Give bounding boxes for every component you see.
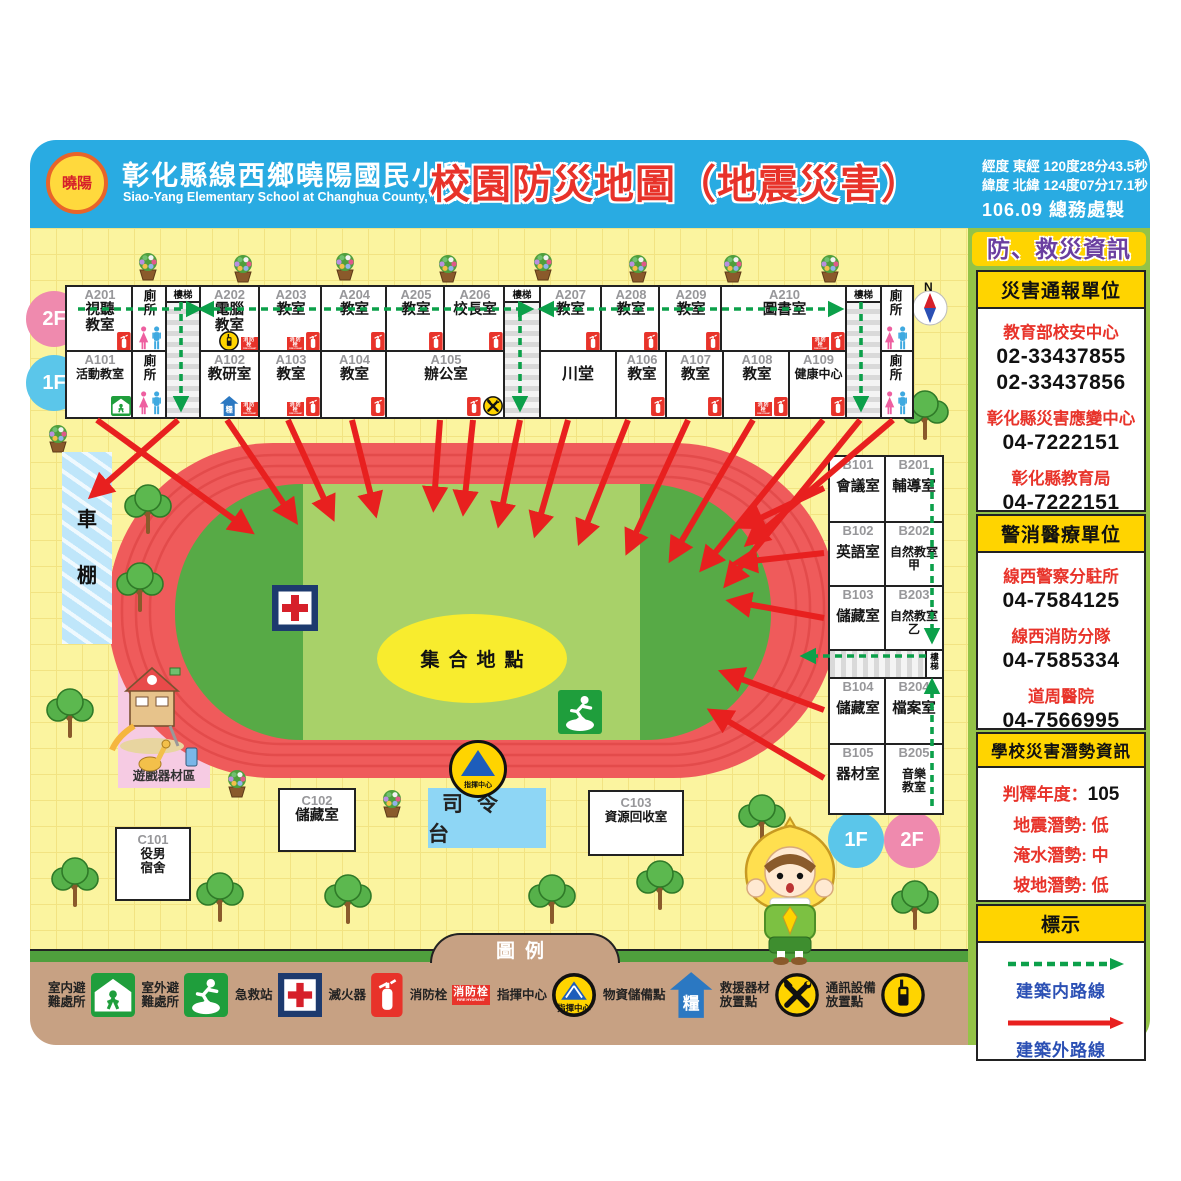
hydrant-icon: 消防栓FIRE HYDRANT <box>452 985 490 1005</box>
room-icons: 消防栓FIRE HYDRANT <box>262 332 320 351</box>
room-id: B102 <box>830 524 886 538</box>
room-A102: A102 教研室 糧消防栓FIRE HYDRANT <box>197 350 262 419</box>
legend-bar: 室内避 難處所室外避 難處所急救站滅火器消防栓消防栓FIRE HYDRANT指揮… <box>30 962 968 1045</box>
toilet-cell: 廁 所 <box>131 350 169 419</box>
contact-phone: 04-7585334 <box>978 649 1144 673</box>
room-A101: A101 活動教室 <box>65 350 135 419</box>
extinguisher-icon <box>706 332 720 351</box>
bike-shed-label: 車 棚 <box>77 492 97 604</box>
school-name-english: Siao-Yang Elementary School at Changhua … <box>123 190 473 204</box>
room-name: 辦公室 <box>387 368 505 384</box>
legend-items: 室内避 難處所室外避 難處所急救站滅火器消防栓消防栓FIRE HYDRANT指揮… <box>48 972 962 1018</box>
command-center-label: 指揮中心 <box>452 780 504 790</box>
room-name: 教室 <box>260 368 322 384</box>
room-A206: A206 校長室 <box>443 285 507 354</box>
stage-platform: 司令台 <box>428 788 546 848</box>
room-name: 教室 <box>260 303 322 319</box>
room-id: B204 <box>886 680 942 694</box>
room-id: A209 <box>660 288 722 302</box>
room-icons <box>604 332 658 351</box>
potential-row: 淹水潛勢: 中 <box>978 841 1144 866</box>
room-A210: A210 圖書室 消防栓FIRE HYDRANT <box>720 285 849 354</box>
bike-shed: 車 棚 <box>62 452 112 644</box>
section-header: 災害通報單位 <box>978 272 1144 309</box>
stairs-column: 樓梯 <box>503 285 541 419</box>
contact-phone: 04-7584125 <box>978 589 1144 613</box>
room-id: A109 <box>790 353 847 367</box>
room-A108: A108 教室 消防栓FIRE HYDRANT <box>722 350 792 419</box>
room-id: A204 <box>322 288 387 302</box>
room-id: A202 <box>199 288 260 302</box>
legend-item-extinguisher: 滅火器 <box>329 973 403 1017</box>
room-A109: A109 健康中心 <box>788 350 849 419</box>
room-name: 儲藏室 <box>280 809 354 825</box>
room-name: 檔案室 <box>886 702 942 718</box>
room-name: 器材室 <box>830 768 886 784</box>
legend-item-hydrant: 消防栓消防栓FIRE HYDRANT <box>410 985 490 1005</box>
room-id: A103 <box>260 353 322 367</box>
extinguisher-icon <box>831 332 845 351</box>
room-name: 役男 宿舍 <box>117 848 189 875</box>
room-川堂: 川堂 <box>537 350 619 419</box>
room-name: 資源回收室 <box>590 811 682 825</box>
room-icons: 消防栓FIRE HYDRANT <box>726 397 788 416</box>
hydrant-icon: 消防栓FIRE HYDRANT <box>287 402 304 416</box>
room-name: 教室 <box>660 303 722 319</box>
room-name: 活動教室 <box>67 368 133 381</box>
toilet-persons <box>133 326 167 350</box>
room-id: A107 <box>667 353 724 367</box>
room-id: A106 <box>617 353 667 367</box>
room-icons <box>619 397 665 416</box>
disaster-map-poster: 曉陽 彰化縣線西鄉曉陽國民小學 Siao-Yang Elementary Sch… <box>0 0 1181 1181</box>
outdoor-shelter-icon <box>184 973 228 1017</box>
svg-text:指揮中心: 指揮中心 <box>557 1003 591 1013</box>
supply-icon: 糧 <box>220 396 238 416</box>
hydrant-icon: 消防栓FIRE HYDRANT <box>287 337 304 351</box>
room-icons: 消防栓FIRE HYDRANT <box>201 331 258 351</box>
extinguisher-icon <box>586 332 600 351</box>
section-header: 警消醫療單位 <box>978 516 1144 553</box>
room-icons <box>69 396 131 416</box>
room-A104: A104 教室 <box>320 350 389 419</box>
extinguisher-icon <box>371 332 385 351</box>
command-center-badge: 指揮中心 <box>449 740 507 798</box>
room-B104: B104 儲藏室 <box>828 677 888 747</box>
room-id: A205 <box>387 288 445 302</box>
room-id: A207 <box>539 288 602 302</box>
room-icons <box>324 397 385 416</box>
floor-badge-2f-b: 2F <box>884 812 940 868</box>
room-name: 音樂 教室 <box>886 768 942 794</box>
playground-label: 遊戲器材區 <box>118 765 210 784</box>
potential-row: 坡地潛勢: 低 <box>978 871 1144 896</box>
room-id: B201 <box>886 458 942 472</box>
room-name: 儲藏室 <box>830 702 886 718</box>
stairs-label: 樓梯 <box>503 285 541 303</box>
contact-phone: 04-7222151 <box>978 431 1144 455</box>
first-aid-icon <box>278 973 322 1017</box>
contact-name: 道周醫院 <box>978 683 1144 707</box>
room-B102: B102 英語室 <box>828 521 888 589</box>
room-icons <box>541 332 600 351</box>
room-B101: B101 會議室 <box>828 455 888 525</box>
comm-device-icon <box>881 973 925 1017</box>
toilet-persons <box>880 326 912 350</box>
room-A208: A208 教室 <box>600 285 662 354</box>
stairs-label: 樓梯 <box>165 285 201 303</box>
page-title: 校園防災地圖（地震災害） <box>430 152 975 210</box>
stairs-column: 樓梯 <box>845 285 882 419</box>
room-id: A210 <box>722 288 847 302</box>
toilet-label: 廁 所 <box>880 354 912 383</box>
room-name: 電腦 教室 <box>199 303 260 334</box>
room-id: A105 <box>387 353 505 367</box>
room-icons <box>389 396 503 416</box>
extinguisher-icon <box>117 332 131 351</box>
extinguisher-icon <box>774 397 788 416</box>
potential-row: 地震潛勢: 低 <box>978 811 1144 836</box>
room-id: B202 <box>886 524 942 538</box>
contact-name: 彰化縣教育局 <box>978 465 1144 489</box>
section-header: 標示 <box>978 906 1144 943</box>
room-id: C102 <box>280 794 354 808</box>
legend-label: 室内避 難處所 <box>48 981 86 1010</box>
male-icon <box>151 391 162 415</box>
legend-item-indoor-shelter: 室内避 難處所 <box>48 973 135 1017</box>
male-icon <box>897 326 908 350</box>
legend-label: 物資儲備點 <box>603 988 666 1002</box>
indoor-shelter-icon <box>91 973 135 1017</box>
legend-label: 指揮中心 <box>497 988 547 1002</box>
room-id: A206 <box>445 288 505 302</box>
hydrant-icon: 消防栓FIRE HYDRANT <box>755 402 772 416</box>
room-icons <box>662 332 720 351</box>
room-A103: A103 教室 消防栓FIRE HYDRANT <box>258 350 324 419</box>
room-id: C103 <box>590 796 682 810</box>
room-id: A102 <box>199 353 260 367</box>
longitude-text: 經度 東經 120度28分43.5秒 <box>982 155 1148 175</box>
room-name: 英語室 <box>830 546 886 562</box>
route-label: 建築内路線 <box>978 977 1144 1002</box>
extinguisher-icon <box>306 397 320 416</box>
hydrant-icon: 消防栓FIRE HYDRANT <box>241 402 258 416</box>
room-icons <box>447 332 503 351</box>
rescue-tools-icon <box>483 396 503 416</box>
room-id: B205 <box>886 746 942 760</box>
room-name: 教室 <box>322 368 387 384</box>
assessment-year: 判釋年度：105 <box>978 780 1144 806</box>
room-icons: 消防栓FIRE HYDRANT <box>262 397 320 416</box>
legend-label: 消防栓 <box>410 988 448 1002</box>
school-logo: 曉陽 <box>46 152 108 214</box>
extinguisher-icon <box>467 397 481 416</box>
command-icon: 指揮中心 <box>552 973 596 1017</box>
room-name: 教室 <box>724 368 790 384</box>
room-B202: B202 自然教室 甲 <box>884 521 944 589</box>
room-id: A104 <box>322 353 387 367</box>
assembly-point: 集合地點 <box>377 614 567 703</box>
contact-name: 線西警察分駐所 <box>978 563 1144 587</box>
toilet-label: 廁 所 <box>880 289 912 318</box>
room-name: 健康中心 <box>790 368 847 381</box>
female-icon <box>884 391 895 415</box>
legend-label: 急救站 <box>235 988 273 1002</box>
legend-item-supply: 物資儲備點糧 <box>603 972 713 1018</box>
room-icons: 糧消防栓FIRE HYDRANT <box>201 396 258 416</box>
room-name: 川堂 <box>539 366 617 383</box>
room-name: 視聽 教室 <box>67 303 133 334</box>
room-name: 會議室 <box>830 480 886 496</box>
contact-name: 教育部校安中心 <box>978 319 1144 343</box>
female-icon <box>884 326 895 350</box>
room-name: 圖書室 <box>722 303 847 319</box>
room-name: 輔導室 <box>886 480 942 496</box>
sidebar-title: 防、救災資訊 <box>972 232 1146 266</box>
latitude-text: 緯度 北緯 124度07分17.1秒 <box>982 174 1148 194</box>
extinguisher-icon <box>708 397 722 416</box>
hydrant-icon: 消防栓FIRE HYDRANT <box>241 337 258 351</box>
room-icons <box>792 397 845 416</box>
room-id: A201 <box>67 288 133 302</box>
room-B105: B105 器材室 <box>828 743 888 815</box>
toilet-cell: 廁 所 <box>878 350 914 419</box>
room-icons <box>389 332 443 351</box>
room-name: 教研室 <box>199 368 260 384</box>
room-name: 教室 <box>602 303 660 319</box>
svg-text:糧: 糧 <box>683 993 700 1013</box>
toilet-persons <box>880 391 912 415</box>
room-id: A108 <box>724 353 790 367</box>
legend-label: 通訊設備 放置點 <box>826 981 876 1010</box>
extinguisher-icon <box>831 397 845 416</box>
room-name: 教室 <box>667 368 724 384</box>
extinguisher-icon <box>371 973 403 1017</box>
room-B205: B205 音樂 教室 <box>884 743 944 815</box>
contact-name: 彰化縣災害應變中心 <box>978 405 1144 429</box>
school-name: 彰化縣線西鄉曉陽國民小學 <box>122 154 470 193</box>
room-id: B101 <box>830 458 886 472</box>
room-name: 教室 <box>322 303 387 319</box>
supply-icon: 糧 <box>670 972 712 1018</box>
info-sidebar: 防、救災資訊 災害通報單位教育部校安中心02-3343785502-334378… <box>968 228 1150 1045</box>
legend-title: 圖例 <box>430 933 620 963</box>
edition-text: 106.09 總務處製 <box>982 196 1125 222</box>
room-C102: C102 儲藏室 <box>278 788 356 852</box>
red-solid-arrow <box>1006 1016 1116 1032</box>
hydrant-icon: 消防栓FIRE HYDRANT <box>812 337 829 351</box>
extinguisher-icon <box>371 397 385 416</box>
sidebar-section-potential: 學校災害潛勢資訊 判釋年度：105地震潛勢: 低淹水潛勢: 中坡地潛勢: 低人為… <box>976 732 1146 902</box>
male-icon <box>151 326 162 350</box>
contact-name: 線西消防分隊 <box>978 623 1144 647</box>
room-name: 校長室 <box>445 303 505 319</box>
room-id: A203 <box>260 288 322 302</box>
room-C101: C101 役男 宿舍 <box>115 827 191 901</box>
room-name: 自然教室 甲 <box>886 546 942 572</box>
svg-text:糧: 糧 <box>226 405 234 414</box>
room-B201: B201 輔導室 <box>884 455 944 525</box>
toilet-cell: 廁 所 <box>131 285 169 354</box>
contact-phone: 04-7566995 <box>978 709 1144 733</box>
room-A203: A203 教室 消防栓FIRE HYDRANT <box>258 285 324 354</box>
room-id: A101 <box>67 353 133 367</box>
extinguisher-icon <box>489 332 503 351</box>
room-A204: A204 教室 <box>320 285 389 354</box>
room-A207: A207 教室 <box>537 285 604 354</box>
room-name: 教室 <box>617 368 667 384</box>
extinguisher-icon <box>306 332 320 351</box>
legend-label: 室外避 難處所 <box>142 981 180 1010</box>
legend-item-first-aid: 急救站 <box>235 973 322 1017</box>
playground-area: 遊戲器材區 <box>118 645 210 788</box>
command-center-icon <box>461 750 495 776</box>
legend-item-rescue-tools: 救援器材 放置點 <box>720 973 819 1017</box>
extinguisher-icon <box>429 332 443 351</box>
rescue-tools-icon <box>775 973 819 1017</box>
legend-label: 滅火器 <box>329 988 367 1002</box>
room-name: 教室 <box>539 303 602 319</box>
female-icon <box>138 391 149 415</box>
room-icons <box>669 397 722 416</box>
room-id: B104 <box>830 680 886 694</box>
room-A106: A106 教室 <box>615 350 669 419</box>
floor-badge-1f-b: 1F <box>828 812 884 868</box>
stairs-label: 樓梯 <box>845 285 882 303</box>
toilet-persons <box>133 391 167 415</box>
legend-item-outdoor-shelter: 室外避 難處所 <box>142 973 229 1017</box>
room-icons <box>69 332 131 351</box>
room-name: 儲藏室 <box>830 610 886 626</box>
room-id: B103 <box>830 588 886 602</box>
room-A201: A201 視聽 教室 <box>65 285 135 354</box>
male-icon <box>897 391 908 415</box>
room-B203: B203 自然教室 乙 <box>884 585 944 653</box>
legend-item-comm-device: 通訊設備 放置點 <box>826 973 925 1017</box>
sidebar-section-警消醫療單位: 警消醫療單位線西警察分駐所04-7584125線西消防分隊04-7585334道… <box>976 514 1146 730</box>
sidebar-section-災害通報單位: 災害通報單位教育部校安中心02-3343785502-33437856彰化縣災害… <box>976 270 1146 512</box>
route-label: 建築外路線 <box>978 1036 1144 1061</box>
extinguisher-icon <box>651 397 665 416</box>
contact-phone: 02-33437855 <box>978 345 1144 369</box>
room-name: 自然教室 乙 <box>886 610 942 636</box>
toilet-label: 廁 所 <box>133 354 167 383</box>
compass-north-label: N <box>924 280 933 294</box>
room-id: B105 <box>830 746 886 760</box>
room-B204: B204 檔案室 <box>884 677 944 747</box>
toilet-label: 廁 所 <box>133 289 167 318</box>
room-id: A208 <box>602 288 660 302</box>
room-icons <box>324 332 385 351</box>
sidebar-section-routes: 標示 建築内路線 建築外路線 <box>976 904 1146 1061</box>
room-id: C101 <box>117 833 189 847</box>
room-icons: 消防栓FIRE HYDRANT <box>724 332 845 351</box>
contact-phone: 04-7222151 <box>978 491 1144 515</box>
legend-label: 救援器材 放置點 <box>720 981 770 1010</box>
room-A209: A209 教室 <box>658 285 724 354</box>
room-A107: A107 教室 <box>665 350 726 419</box>
room-A205: A205 教室 <box>385 285 447 354</box>
room-name: 教室 <box>387 303 445 319</box>
section-header: 學校災害潛勢資訊 <box>978 734 1144 768</box>
green-dashed-arrow <box>1006 957 1116 973</box>
legend-item-command: 指揮中心指揮中心 <box>497 973 596 1017</box>
stairs-column: 樓梯 <box>165 285 201 419</box>
extinguisher-icon <box>644 332 658 351</box>
room-id: B203 <box>886 588 942 602</box>
room-A202: A202 電腦 教室 消防栓FIRE HYDRANT <box>197 285 262 354</box>
female-icon <box>138 326 149 350</box>
room-B103: B103 儲藏室 <box>828 585 888 653</box>
room-A105: A105 辦公室 <box>385 350 507 419</box>
room-C103: C103 資源回收室 <box>588 790 684 856</box>
indoor-shelter-icon <box>111 396 131 416</box>
comm-device-icon <box>219 331 239 351</box>
toilet-cell: 廁 所 <box>878 285 914 354</box>
contact-phone: 02-33437856 <box>978 371 1144 395</box>
